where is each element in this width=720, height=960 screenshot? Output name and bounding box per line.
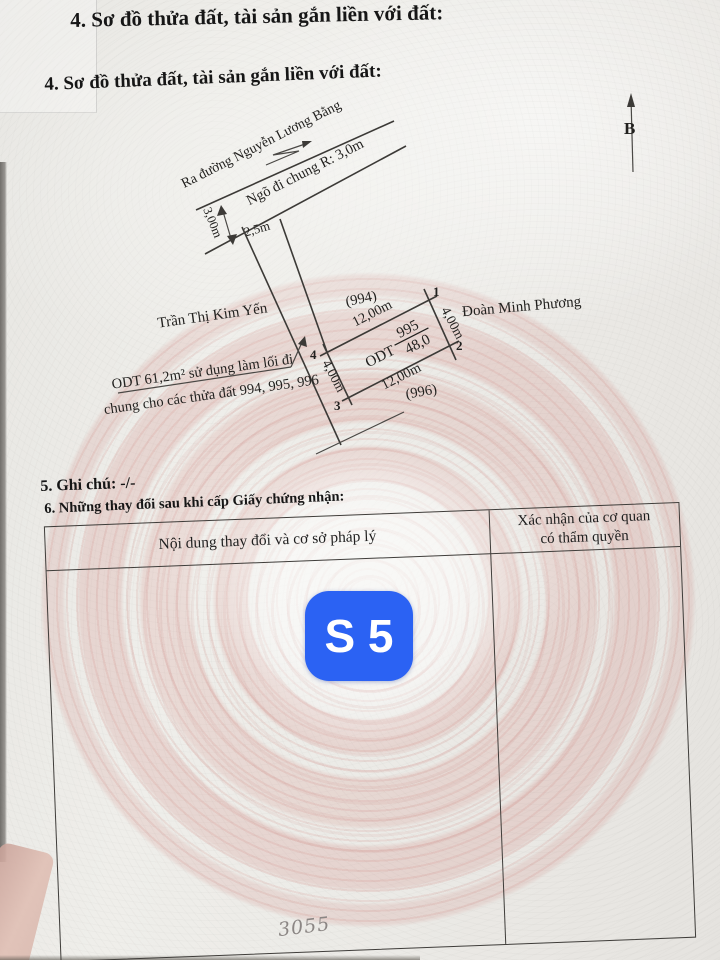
corner-1-label: 1 <box>433 284 440 299</box>
table-column-divider <box>488 510 506 944</box>
section5-heading: 5. Ghi chú: -/- <box>40 475 136 496</box>
neighbor-left-name: Trần Thị Kim Yến <box>157 300 269 331</box>
alley-left-line <box>242 227 341 445</box>
table-header-confirmation: Xác nhận của cơ quan có thẩm quyền <box>488 503 680 553</box>
s5-badge: S 5 <box>305 591 413 681</box>
north-arrow: B <box>624 93 635 172</box>
north-label: B <box>624 119 635 138</box>
parcel-996-label: (996) <box>404 381 438 402</box>
corner-4-label: 4 <box>310 347 317 362</box>
edge-left-length: 4,00m <box>319 357 348 395</box>
shared-path-note: ODT 61,2m² sử dụng làm lối đi chung cho … <box>103 336 320 418</box>
table-header-confirmation-line2: có thẩm quyền <box>540 526 629 548</box>
table-header-confirmation-line1: Xác nhận của cơ quan <box>517 507 650 531</box>
changes-table: Nội dung thay đổi và cơ sở pháp lý Xác n… <box>44 502 696 960</box>
corner-3-label: 3 <box>334 398 341 413</box>
road-width-measure: 3,00m <box>200 205 237 245</box>
road-name-label: Ra đường Nguyễn Lương Bằng <box>179 98 343 192</box>
alley-right-line <box>280 219 327 352</box>
corner-2-label: 2 <box>456 338 463 353</box>
certificate-page: 4. Sơ đồ thửa đất, tài sản gắn liền với … <box>0 0 720 960</box>
neighbor-right-name: Đoàn Minh Phương <box>461 294 582 320</box>
parcel-use-label: ODT <box>363 343 398 371</box>
